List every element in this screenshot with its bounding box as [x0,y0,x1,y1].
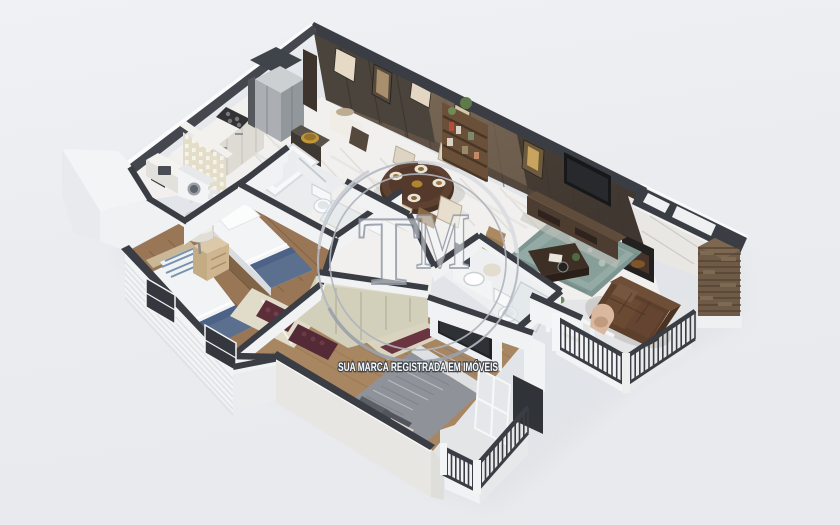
svg-text:T: T [358,197,420,306]
svg-text:SUA MARCA REGISTRADA EM IMÓVEI: SUA MARCA REGISTRADA EM IMÓVEIS [338,359,498,374]
svg-text:M: M [416,198,470,286]
